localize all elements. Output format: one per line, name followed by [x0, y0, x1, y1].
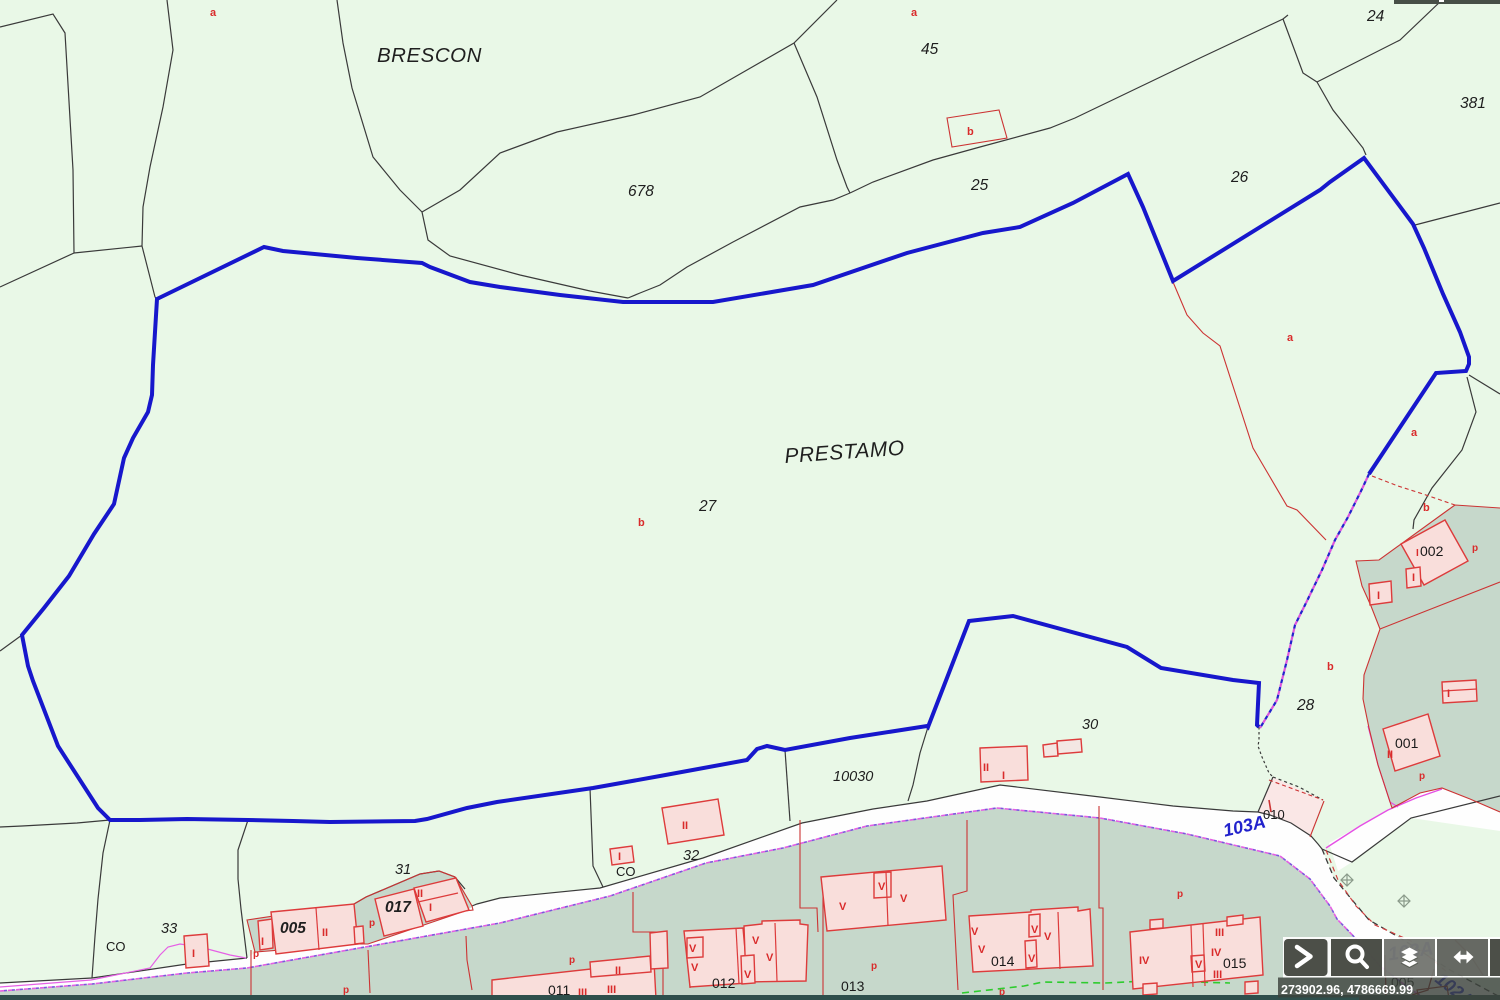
svg-text:II: II — [1387, 749, 1393, 761]
svg-text:III: III — [607, 984, 616, 996]
svg-text:012: 012 — [712, 975, 736, 991]
svg-text:V: V — [744, 969, 752, 981]
svg-text:p: p — [569, 955, 575, 966]
svg-text:V: V — [1195, 959, 1203, 971]
svg-text:b: b — [638, 517, 645, 529]
svg-text:32: 32 — [683, 848, 699, 864]
svg-text:III: III — [1213, 969, 1222, 981]
svg-text:a: a — [1287, 332, 1294, 344]
svg-text:p: p — [1177, 889, 1183, 900]
svg-text:CO: CO — [106, 939, 126, 954]
svg-text:II: II — [682, 820, 688, 832]
svg-text:IV: IV — [1211, 947, 1222, 959]
svg-text:CO: CO — [616, 864, 636, 879]
svg-text:31: 31 — [395, 862, 411, 878]
svg-text:p: p — [871, 961, 877, 972]
svg-text:a: a — [210, 7, 217, 19]
svg-text:005: 005 — [280, 920, 306, 937]
svg-text:27: 27 — [698, 498, 718, 515]
svg-text:p: p — [343, 985, 349, 996]
svg-text:V: V — [691, 962, 699, 974]
svg-text:010: 010 — [1263, 807, 1285, 822]
svg-text:a: a — [1411, 427, 1418, 439]
svg-text:013: 013 — [841, 978, 865, 994]
svg-text:678: 678 — [628, 183, 654, 200]
svg-text:BRESCON: BRESCON — [377, 44, 482, 67]
svg-text:V: V — [689, 943, 697, 955]
svg-text:014: 014 — [991, 953, 1015, 969]
svg-text:p: p — [369, 918, 375, 929]
svg-text:10030: 10030 — [833, 769, 873, 785]
svg-text:V: V — [900, 893, 908, 905]
svg-text:I: I — [618, 851, 621, 863]
svg-text:25: 25 — [970, 177, 989, 194]
svg-text:b: b — [1327, 661, 1334, 673]
svg-text:I: I — [1412, 572, 1415, 584]
svg-text:I: I — [192, 948, 195, 960]
svg-text:I: I — [261, 936, 264, 948]
svg-text:I: I — [1447, 688, 1450, 700]
svg-text:V: V — [766, 952, 774, 964]
svg-text:p: p — [253, 949, 259, 960]
svg-text:a: a — [911, 7, 918, 19]
svg-text:p: p — [1472, 543, 1478, 554]
svg-text:b: b — [967, 126, 974, 138]
svg-text:V: V — [839, 901, 847, 913]
svg-text:26: 26 — [1230, 169, 1249, 186]
svg-text:24: 24 — [1366, 8, 1385, 25]
svg-text:II: II — [417, 888, 423, 900]
svg-text:001: 001 — [1395, 735, 1419, 751]
svg-text:I: I — [429, 902, 432, 914]
svg-text:V: V — [971, 926, 979, 938]
svg-text:p: p — [1419, 771, 1425, 782]
svg-text:II: II — [615, 965, 621, 977]
svg-text:V: V — [1028, 953, 1036, 965]
svg-text:273902.96, 4786669.99: 273902.96, 4786669.99 — [1281, 983, 1413, 997]
svg-text:V: V — [878, 881, 886, 893]
svg-text:III: III — [1215, 927, 1224, 939]
svg-text:002: 002 — [1420, 543, 1444, 559]
svg-text:I: I — [1002, 770, 1005, 782]
svg-text:381: 381 — [1460, 95, 1486, 112]
svg-text:015: 015 — [1223, 955, 1247, 971]
svg-text:33: 33 — [161, 921, 177, 937]
svg-text:I: I — [1416, 548, 1419, 559]
svg-text:V: V — [978, 944, 986, 956]
svg-text:V: V — [1044, 931, 1052, 943]
svg-text:I: I — [1377, 590, 1380, 602]
svg-text:V: V — [752, 935, 760, 947]
svg-text:017: 017 — [385, 899, 412, 916]
svg-text:II: II — [983, 762, 989, 774]
svg-text:V: V — [1031, 924, 1039, 936]
svg-text:28: 28 — [1296, 697, 1315, 714]
svg-text:b: b — [1423, 502, 1430, 514]
svg-text:II: II — [322, 927, 328, 939]
svg-text:45: 45 — [921, 41, 939, 58]
svg-text:IV: IV — [1139, 955, 1150, 967]
svg-text:30: 30 — [1082, 717, 1098, 733]
